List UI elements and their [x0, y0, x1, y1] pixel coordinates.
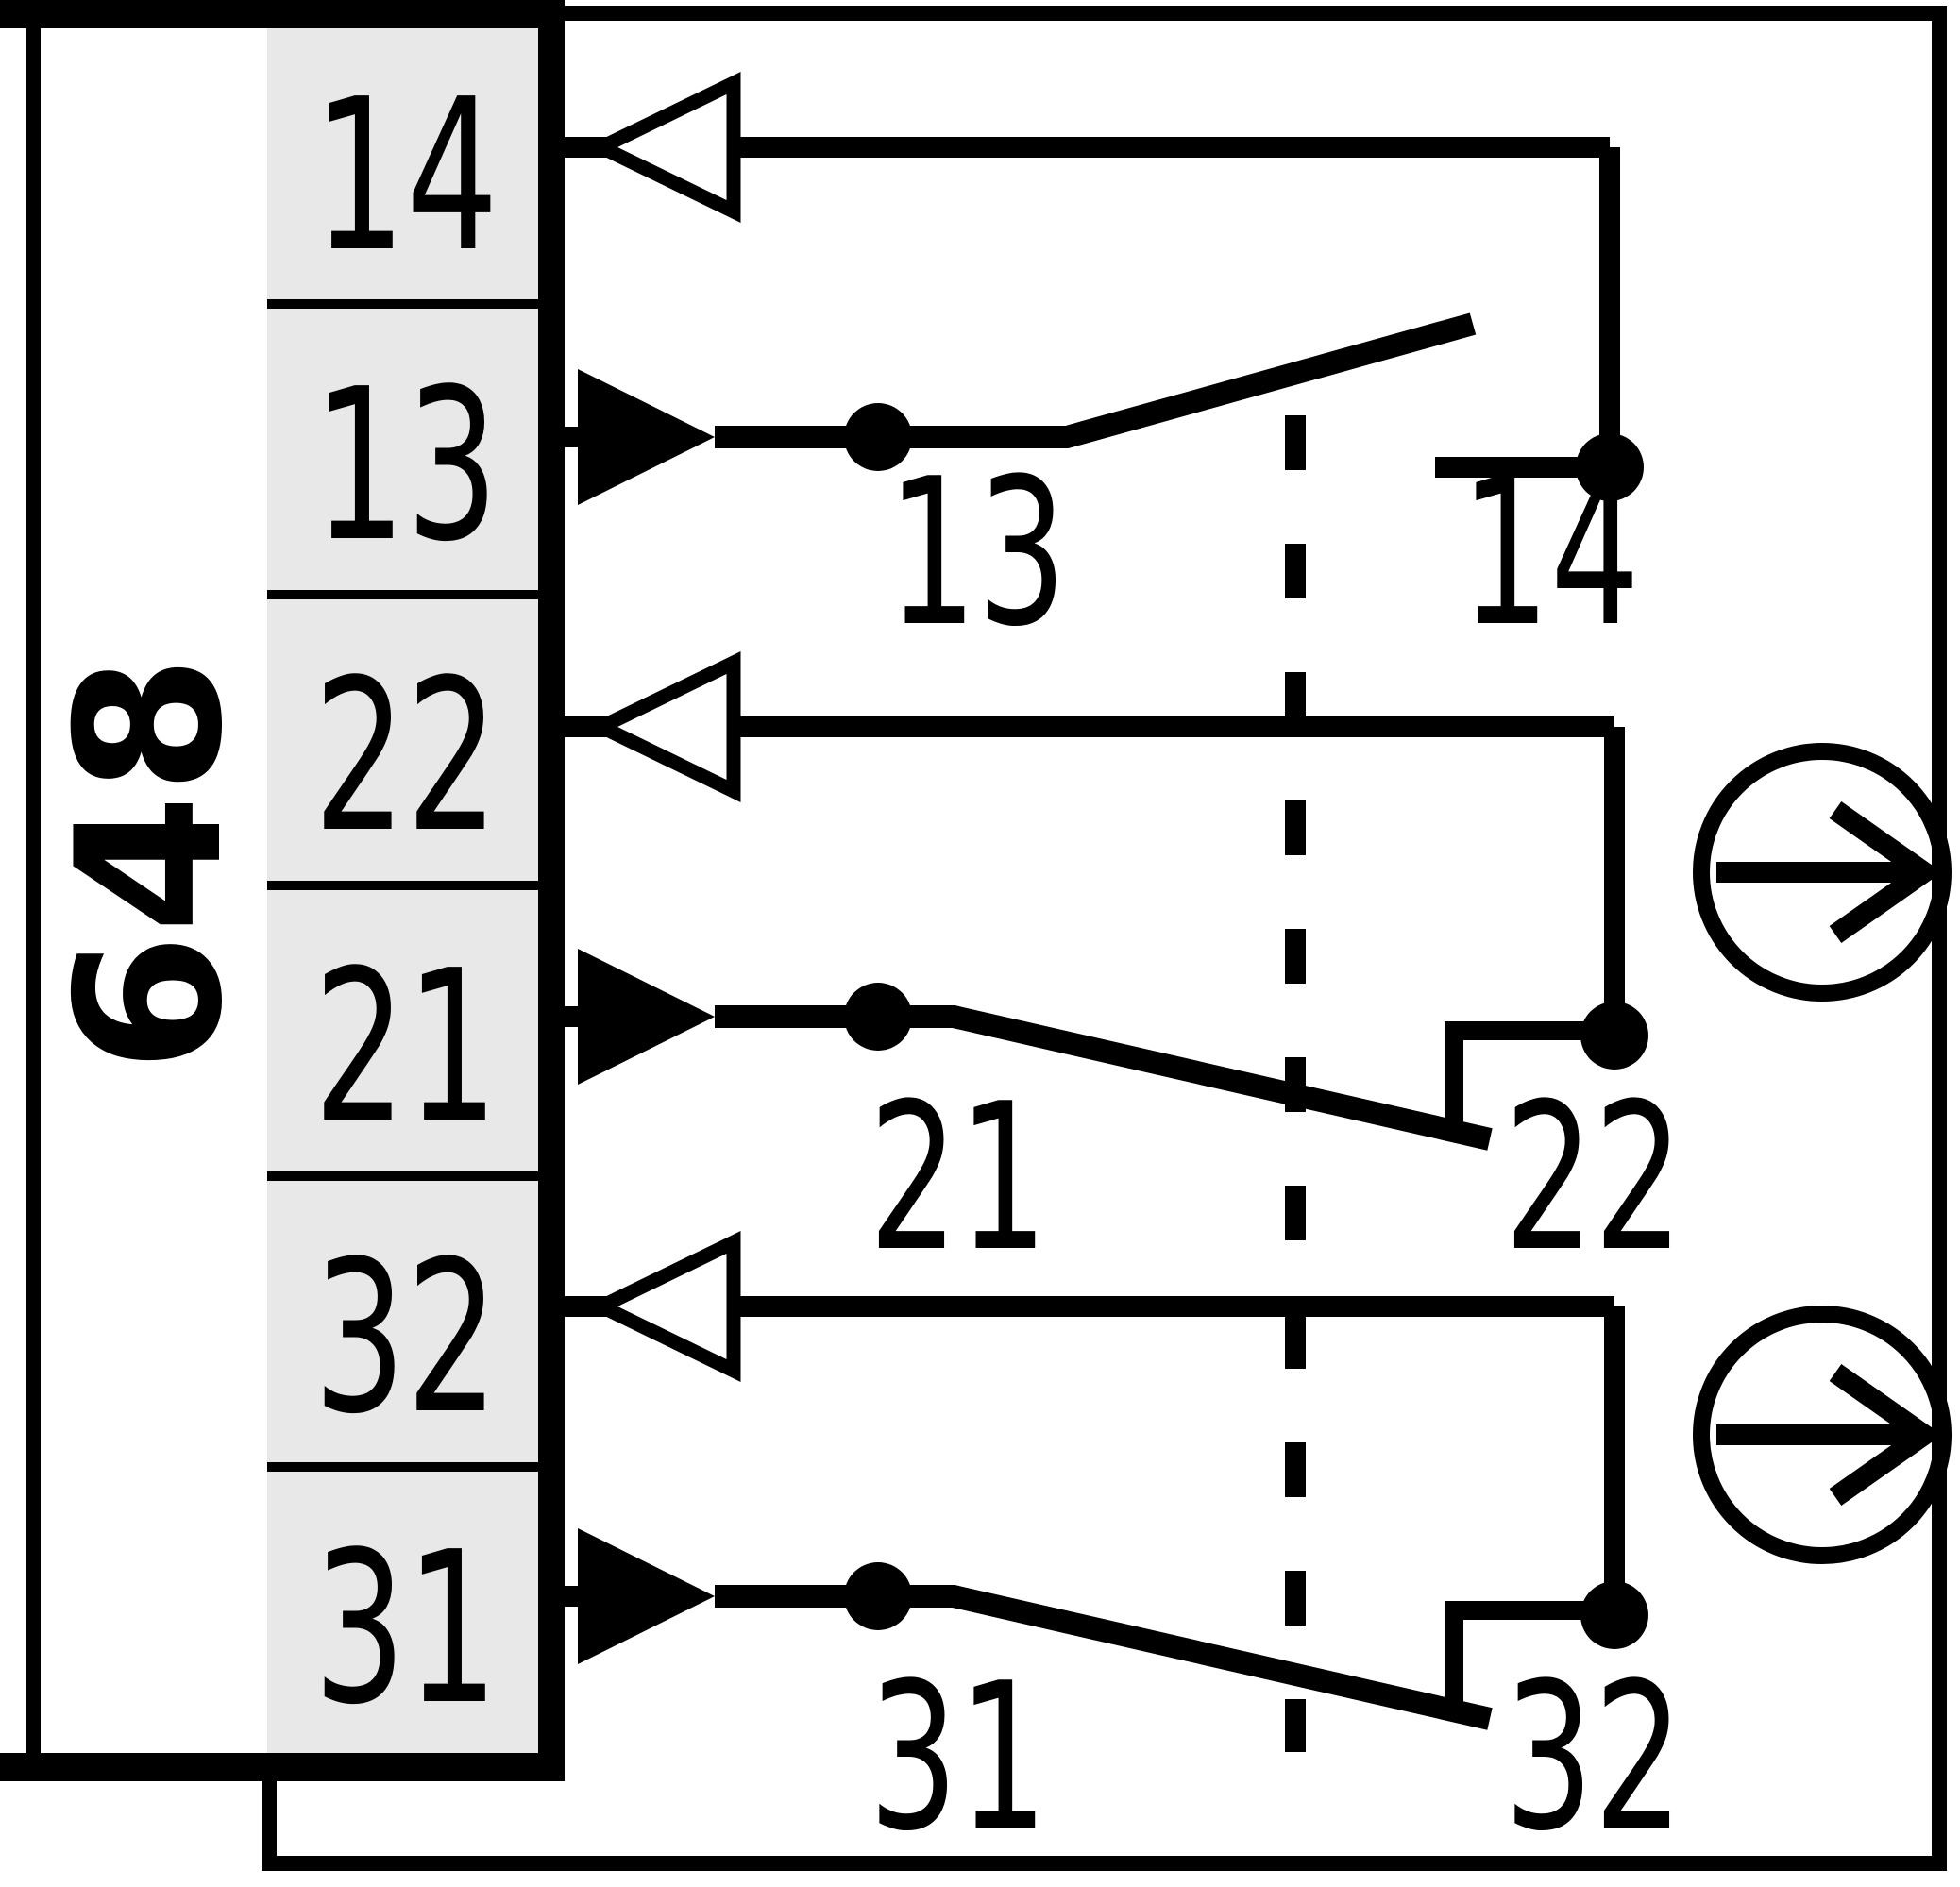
contact-dot-31: [844, 1562, 912, 1630]
model-number: 648: [33, 655, 266, 1073]
terminal-block-bottom-bar: [0, 1753, 565, 1781]
terminal-label-32: 32: [313, 1217, 498, 1460]
contact-label-13: 13: [887, 434, 1067, 671]
no-contact-13-14: 13 14: [565, 83, 1644, 671]
terminal-label-14: 14: [313, 55, 498, 298]
incoming-arrow-icon: [578, 949, 715, 1085]
incoming-arrow-icon: [578, 1528, 715, 1664]
contact-label-32: 32: [1504, 1639, 1683, 1876]
terminal-label-31: 31: [313, 1508, 498, 1751]
switch-blade-21-22: [715, 1017, 1490, 1139]
switch-blade-13-14: [715, 324, 1473, 437]
contact-label-21: 21: [869, 1059, 1048, 1296]
contact-label-22: 22: [1504, 1059, 1683, 1296]
contact-diagram-canvas: 13 14 21 22 31 32: [0, 0, 1960, 1887]
incoming-arrow-icon: [578, 369, 715, 505]
switch-blade-31-32: [715, 1596, 1490, 1719]
nc-contact-31-32: 31 32: [565, 1242, 1683, 1876]
actuation-direction-icon: [1701, 751, 1943, 993]
outgoing-arrow-icon: [601, 663, 734, 791]
terminal-block: 14 13 22 21 32 31 648: [0, 0, 565, 1781]
actuation-direction-icon: [1701, 1314, 1943, 1556]
terminal-label-22: 22: [313, 635, 498, 879]
contact-label-14: 14: [1461, 434, 1640, 671]
wiring-diagram: 13 14 21 22 31 32: [0, 0, 1960, 1887]
contact-dot-21: [844, 983, 912, 1051]
contact-label-31: 31: [869, 1639, 1048, 1876]
terminal-label-21: 21: [313, 926, 498, 1170]
terminal-block-top-bar: [0, 0, 565, 28]
outgoing-arrow-icon: [601, 1242, 734, 1371]
terminal-label-13: 13: [313, 345, 498, 588]
outgoing-arrow-icon: [601, 83, 734, 211]
nc-contact-21-22: 21 22: [565, 663, 1683, 1296]
